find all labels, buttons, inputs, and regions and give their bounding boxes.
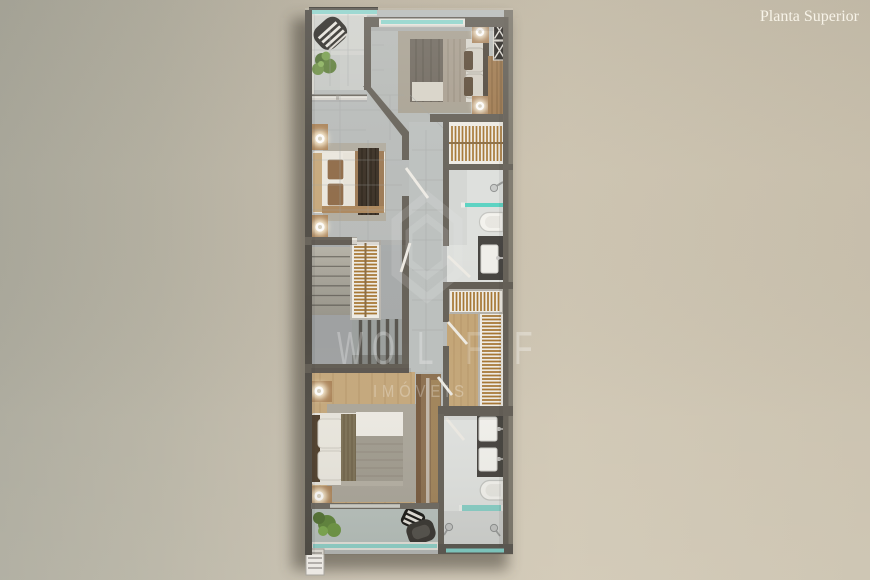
svg-text:L: L xyxy=(417,324,433,375)
svg-text:F: F xyxy=(514,324,533,375)
svg-text:IMÓVEIS: IMÓVEIS xyxy=(373,381,469,402)
svg-text:W: W xyxy=(337,324,363,375)
svg-text:Planta Superior: Planta Superior xyxy=(760,8,860,25)
svg-text:O: O xyxy=(372,324,395,375)
svg-text:F: F xyxy=(465,324,484,375)
